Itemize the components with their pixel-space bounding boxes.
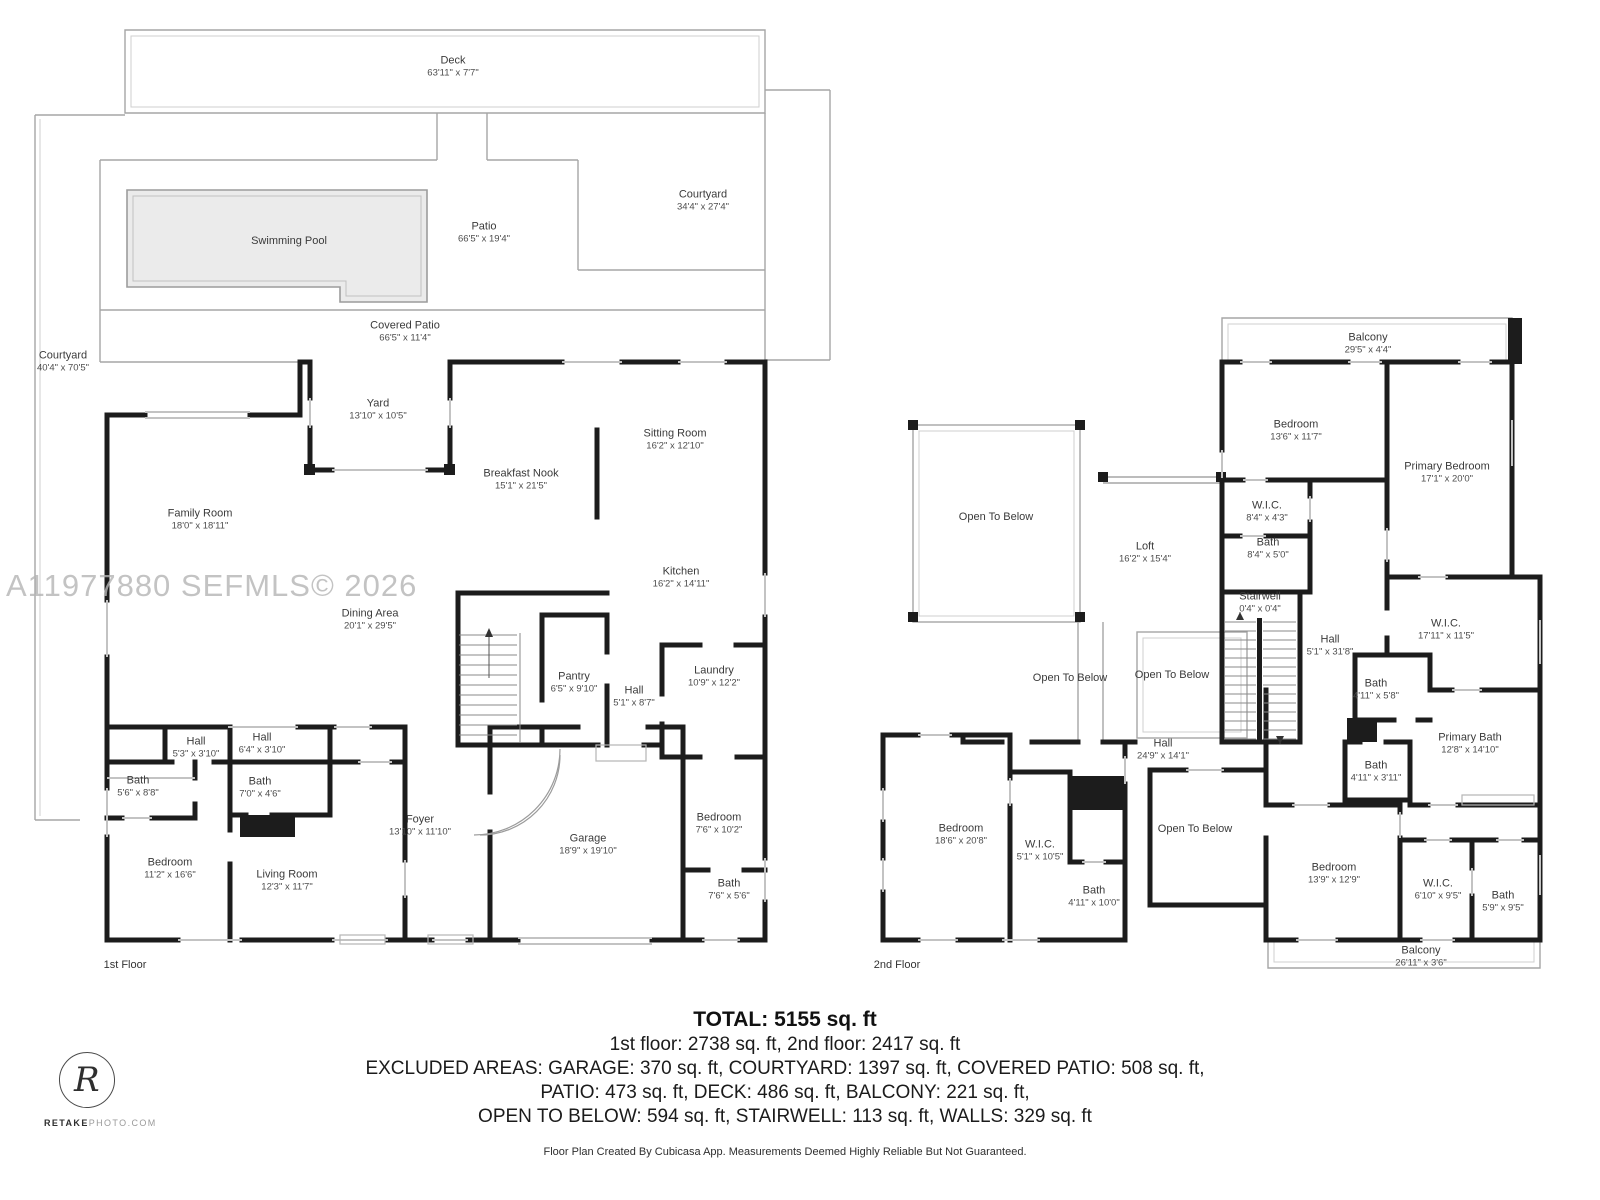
room-label-pantry: Pantry6'5" x 9'10" <box>551 670 598 697</box>
room-label-hall-center: Hall5'1" x 8'7" <box>613 684 655 711</box>
room-label-hall-64: Hall6'4" x 3'10" <box>239 731 286 758</box>
mls-watermark: A11977880 SEFMLS© 2026 <box>6 568 417 604</box>
room-label-open-to-below-mid: Open To Below <box>1135 668 1209 682</box>
second-floor-tag: 2nd Floor <box>874 959 920 971</box>
room-label-dining-area: Dining Area20'1" x 29'5" <box>342 607 399 634</box>
room-label-courtyard-left: Courtyard40'4" x 70'5" <box>37 349 89 376</box>
room-label-hall-249: Hall24'9" x 14'1" <box>1137 737 1189 764</box>
summary-total: TOTAL: 5155 sq. ft <box>0 1008 1570 1032</box>
room-label-bath-411-100: Bath4'11" x 10'0" <box>1068 884 1119 911</box>
room-label-breakfast-nook: Breakfast Nook15'1" x 21'5" <box>483 467 558 494</box>
room-label-open-to-below-left: Open To Below <box>1033 671 1107 685</box>
room-label-stairwell: Stairwell0'4" x 0'4" <box>1239 590 1281 617</box>
summary-excluded-1: EXCLUDED AREAS: GARAGE: 370 sq. ft, COUR… <box>0 1058 1570 1080</box>
room-label-yard: Yard13'10" x 10'5" <box>349 397 406 424</box>
room-label-bedroom-139: Bedroom13'9" x 12'9" <box>1308 861 1360 888</box>
stairs-up-arrow <box>485 628 493 637</box>
room-label-swimming-pool: Swimming Pool <box>251 234 327 248</box>
room-label-primary-bath: Primary Bath12'8" x 14'10" <box>1438 731 1502 758</box>
retakephoto-logo: R RETAKEPHOTO.COM <box>44 1052 130 1128</box>
room-label-loft: Loft16'2" x 15'4" <box>1119 540 1171 567</box>
room-label-deck: Deck63'11" x 7'7" <box>427 54 478 81</box>
room-label-foyer: Foyer13'10" x 11'10" <box>389 813 451 840</box>
room-label-sitting-room: Sitting Room16'2" x 12'10" <box>644 427 707 454</box>
room-label-open-to-below-bottom: Open To Below <box>1158 822 1232 836</box>
room-label-wic-51: W.I.C.5'1" x 10'5" <box>1017 838 1064 865</box>
room-label-kitchen: Kitchen16'2" x 14'11" <box>653 565 710 592</box>
room-label-bath-411-311: Bath4'11" x 3'11" <box>1351 759 1402 786</box>
foyer-entry-arc <box>474 749 560 835</box>
room-label-garage: Garage18'9" x 19'10" <box>559 832 616 859</box>
room-label-bedroom-186: Bedroom18'6" x 20'8" <box>935 822 987 849</box>
room-label-wic-84: W.I.C.8'4" x 4'3" <box>1246 499 1288 526</box>
room-label-hall-518: Hall5'1" x 31'8" <box>1307 633 1354 660</box>
room-label-wic-1711: W.I.C.17'11" x 11'5" <box>1418 617 1474 644</box>
room-label-laundry: Laundry10'9" x 12'2" <box>688 664 740 691</box>
room-label-balcony-top: Balcony29'5" x 4'4" <box>1345 331 1392 358</box>
room-label-living-room: Living Room12'3" x 11'7" <box>256 868 317 895</box>
room-label-bath-70: Bath7'0" x 4'6" <box>239 775 281 802</box>
room-label-bath-59: Bath5'9" x 9'5" <box>1482 889 1524 916</box>
room-label-bath-56: Bath5'6" x 8'8" <box>117 774 159 801</box>
room-label-wic-610: W.I.C.6'10" x 9'5" <box>1415 877 1462 904</box>
room-label-covered-patio: Covered Patio66'5" x 11'4" <box>370 319 440 346</box>
room-label-bedroom-112: Bedroom11'2" x 16'6" <box>144 856 195 883</box>
second-floor-walls <box>883 362 1540 940</box>
area-summary: TOTAL: 5155 sq. ft 1st floor: 2738 sq. f… <box>0 1008 1570 1158</box>
room-label-hall-53: Hall5'3" x 3'10" <box>173 735 220 762</box>
room-label-bedroom-136: Bedroom13'6" x 11'7" <box>1270 418 1321 445</box>
floor-plan-page: A11977880 SEFMLS© 2026 Deck63'11" x 7'7"… <box>0 0 1600 1200</box>
summary-excluded-2: PATIO: 473 sq. ft, DECK: 486 sq. ft, BAL… <box>0 1082 1570 1104</box>
summary-floors: 1st floor: 2738 sq. ft, 2nd floor: 2417 … <box>0 1034 1570 1056</box>
first-floor-tag: 1st Floor <box>104 959 147 971</box>
room-label-family-room: Family Room18'0" x 18'11" <box>168 507 233 534</box>
logo-brand-text: RETAKEPHOTO.COM <box>44 1118 130 1128</box>
first-floor-outdoor-outline <box>35 30 830 820</box>
room-label-open-to-below-big: Open To Below <box>959 510 1033 524</box>
room-label-balcony-bottom: Balcony26'11" x 3'6" <box>1395 944 1446 971</box>
logo-monogram: R <box>74 1063 100 1097</box>
room-label-bath-84: Bath8'4" x 5'0" <box>1247 536 1289 563</box>
room-label-bath-76: Bath7'6" x 5'6" <box>708 877 750 904</box>
summary-footer: Floor Plan Created By Cubicasa App. Meas… <box>0 1146 1570 1158</box>
room-label-patio: Patio66'5" x 19'4" <box>458 220 510 247</box>
summary-excluded-3: OPEN TO BELOW: 594 sq. ft, STAIRWELL: 11… <box>0 1106 1570 1128</box>
room-label-bedroom-76: Bedroom7'6" x 10'2" <box>696 811 743 838</box>
room-label-primary-bedroom: Primary Bedroom17'1" x 20'0" <box>1404 460 1490 487</box>
second-floor-windows <box>883 362 1540 940</box>
room-label-courtyard-right: Courtyard34'4" x 27'4" <box>677 188 729 215</box>
logo-circle: R <box>55 1048 118 1111</box>
room-label-bath-411-58: Bath4'11" x 5'8" <box>1353 677 1399 704</box>
